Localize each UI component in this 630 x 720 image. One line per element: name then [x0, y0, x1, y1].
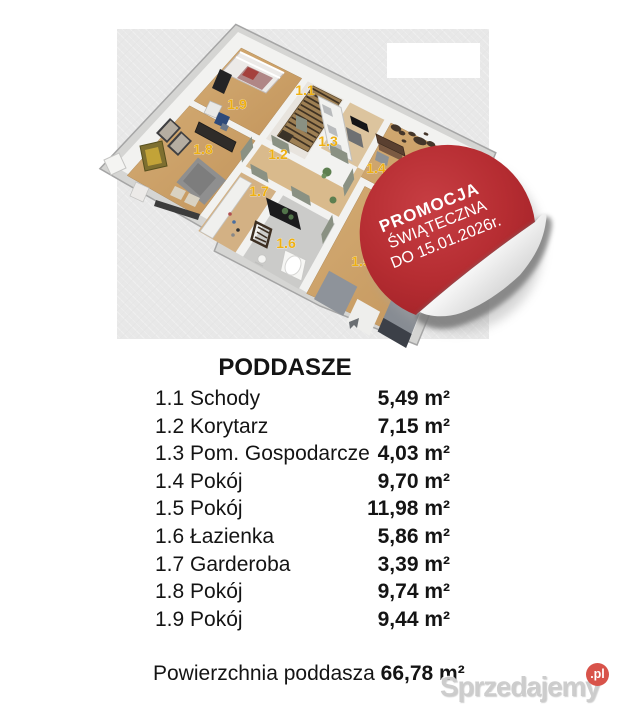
svg-text:1.9: 1.9 [227, 96, 247, 112]
svg-text:1.8: 1.8 [193, 141, 213, 157]
svg-text:1.6: 1.6 [276, 235, 296, 251]
svg-text:1.2: 1.2 [268, 146, 288, 162]
svg-text:1.3: 1.3 [318, 133, 338, 149]
svg-text:1.7: 1.7 [249, 183, 269, 199]
svg-text:1.1: 1.1 [295, 82, 315, 98]
